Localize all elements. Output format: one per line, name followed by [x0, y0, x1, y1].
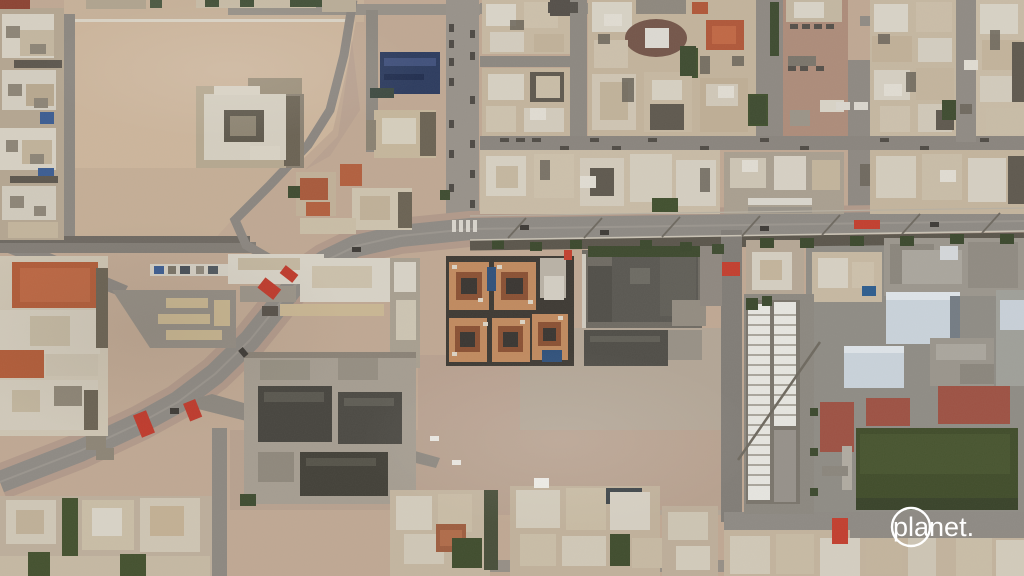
svg-text:planet.: planet.	[893, 512, 974, 542]
